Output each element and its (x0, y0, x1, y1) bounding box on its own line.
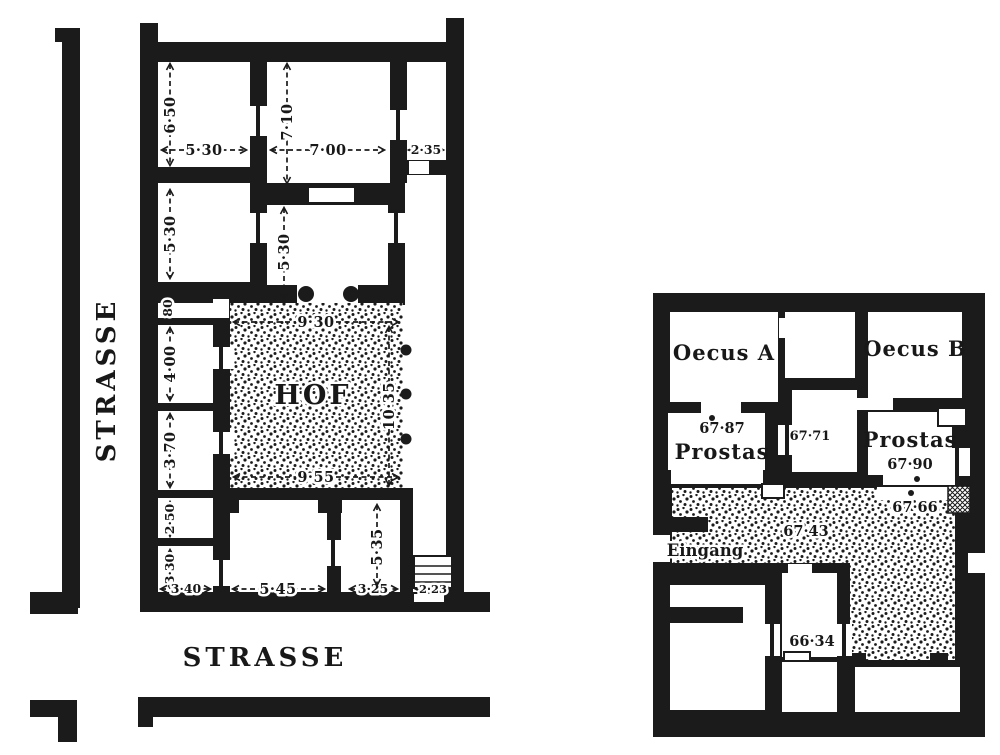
threshold-dot (908, 490, 914, 496)
dim-4-00: 4·00 (162, 328, 179, 400)
street-wall-left (62, 28, 80, 608)
right-plan: Oecus A Oecus B 67·87 Prostas 67·71 Pros… (653, 293, 985, 737)
wall-rowA-south (158, 167, 267, 183)
threshold-middle (762, 484, 784, 498)
dim-7-10: 7·10 (279, 64, 296, 183)
street-label-west: STRASSE (92, 298, 122, 463)
threshold-small (784, 652, 810, 661)
dim-label: 9·30 (297, 314, 334, 331)
room-label-prostas-left: Prostas (675, 439, 770, 464)
floor-plan-drawing: 6·50 5·30 7·10 7·00 2·35 5·30 (0, 0, 1000, 755)
door (321, 540, 347, 566)
dim-label: 5·30 (276, 233, 293, 270)
door (836, 624, 852, 656)
street-wall-left-foot (30, 592, 78, 614)
dim-label: 2·23 (419, 582, 447, 596)
dim-3-70: 3·70 (162, 414, 179, 487)
door (209, 347, 234, 369)
dim-label: 3·30 (162, 553, 177, 584)
outer-wall-east-foot (446, 592, 490, 612)
door (209, 432, 234, 454)
left-plan: 6·50 5·30 7·10 7·00 2·35 5·30 (30, 18, 490, 742)
street-corner-wall-v (58, 700, 77, 742)
anta-stub-east (358, 285, 390, 303)
room-bottom-right (855, 667, 960, 712)
wall-div1 (158, 403, 213, 411)
room-bottom-middle-upper (782, 573, 837, 627)
dim-5-35: 5·35 (369, 505, 386, 585)
elevation-67-43: 67·43 (783, 523, 828, 540)
room-label-oecus-b: Oecus B (863, 336, 967, 361)
wall-div2 (158, 490, 213, 498)
wall-v3 (250, 183, 267, 305)
elevation-67-71: 67·71 (790, 429, 831, 444)
door (764, 624, 780, 656)
door (246, 106, 271, 136)
dim-2-23: 2·23 (416, 582, 451, 596)
wall-court-south-stub (227, 500, 239, 513)
elevation-67-66: 67·66 (892, 499, 937, 516)
dim-2-35: 2·35 (409, 142, 443, 157)
column-dot (343, 286, 359, 302)
door (209, 560, 234, 586)
door (246, 213, 271, 243)
dim-label: 7·10 (279, 103, 296, 140)
threshold (409, 161, 429, 174)
room-bottom-left (670, 585, 765, 710)
door (384, 213, 409, 243)
door (945, 448, 970, 476)
room-label-prostas-right: Prostas (863, 427, 958, 452)
dim-label: 5·45 (259, 581, 296, 598)
anta-stub-west (267, 285, 297, 303)
threshold-oecus-a (701, 400, 741, 413)
wall-court-south (225, 488, 403, 500)
dim-label: 5·30 (162, 215, 179, 252)
door-notch (788, 564, 812, 575)
threshold-oecus-b (845, 398, 893, 410)
dim-5-30-b: 5·30 (162, 190, 179, 278)
dim-label: 10·35 (381, 382, 398, 430)
east-wall-gap (968, 553, 985, 573)
wall-v8 (400, 488, 413, 592)
dim-2-50: 2·50 (162, 502, 177, 536)
passage-door (213, 299, 229, 318)
figure-floor-plans: 6·50 5·30 7·10 7·00 2·35 5·30 (0, 0, 1000, 755)
threshold-prostas-left (671, 470, 763, 484)
wall-v4 (388, 183, 405, 305)
outer-wall-north (140, 42, 462, 62)
door (386, 110, 411, 140)
wall-passage-south (158, 318, 213, 325)
dim-label: 6·50 (162, 96, 179, 133)
entrance-label: Eingang (667, 541, 744, 560)
room-bottom-middle-lower (782, 662, 837, 712)
dim-label: 4·00 (162, 345, 179, 382)
colonnade-dot (401, 434, 412, 445)
elevation-66-34: 66·34 (789, 633, 834, 650)
dim-label: 3·40 (171, 581, 202, 596)
outer-wall-west (140, 23, 158, 612)
dim-label: 3·25 (358, 581, 388, 596)
dim-label: 7·00 (309, 142, 346, 159)
dim-label: 9·55 (297, 469, 334, 486)
courtyard-label: HOF (274, 380, 351, 411)
wall-v5 (213, 300, 230, 498)
wall-jut-west (653, 517, 708, 532)
outer-wall-east (446, 18, 464, 592)
threshold (308, 187, 355, 203)
dim-label: 5·35 (369, 528, 386, 565)
colonnade-dot (401, 389, 412, 400)
dim-label-passage-80: 80 (160, 299, 175, 317)
dim-label: 5·30 (185, 142, 222, 159)
dim-label: 2·50 (162, 503, 177, 534)
door-recess (938, 408, 966, 426)
dim-label: 3·70 (162, 431, 179, 468)
elevation-67-90: 67·90 (887, 456, 932, 473)
threshold-dot (914, 476, 920, 482)
dim-7-00: 7·00 (271, 142, 384, 159)
dim-5-30-a: 5·30 (162, 142, 246, 159)
door-notch (779, 318, 792, 338)
wall-div3 (158, 538, 213, 546)
street-wall-south (138, 697, 490, 717)
dim-label: 2·35 (411, 142, 441, 157)
elevation-67-87: 67·87 (699, 420, 744, 437)
crosshatch-pier (948, 486, 970, 513)
street-label-south: STRASSE (183, 643, 348, 673)
colonnade-dot (401, 345, 412, 356)
room-top-middle (785, 312, 855, 378)
wall-stub-bottom-left-room (653, 607, 743, 623)
column-dot (298, 286, 314, 302)
room-label-oecus-a: Oecus A (673, 340, 775, 365)
